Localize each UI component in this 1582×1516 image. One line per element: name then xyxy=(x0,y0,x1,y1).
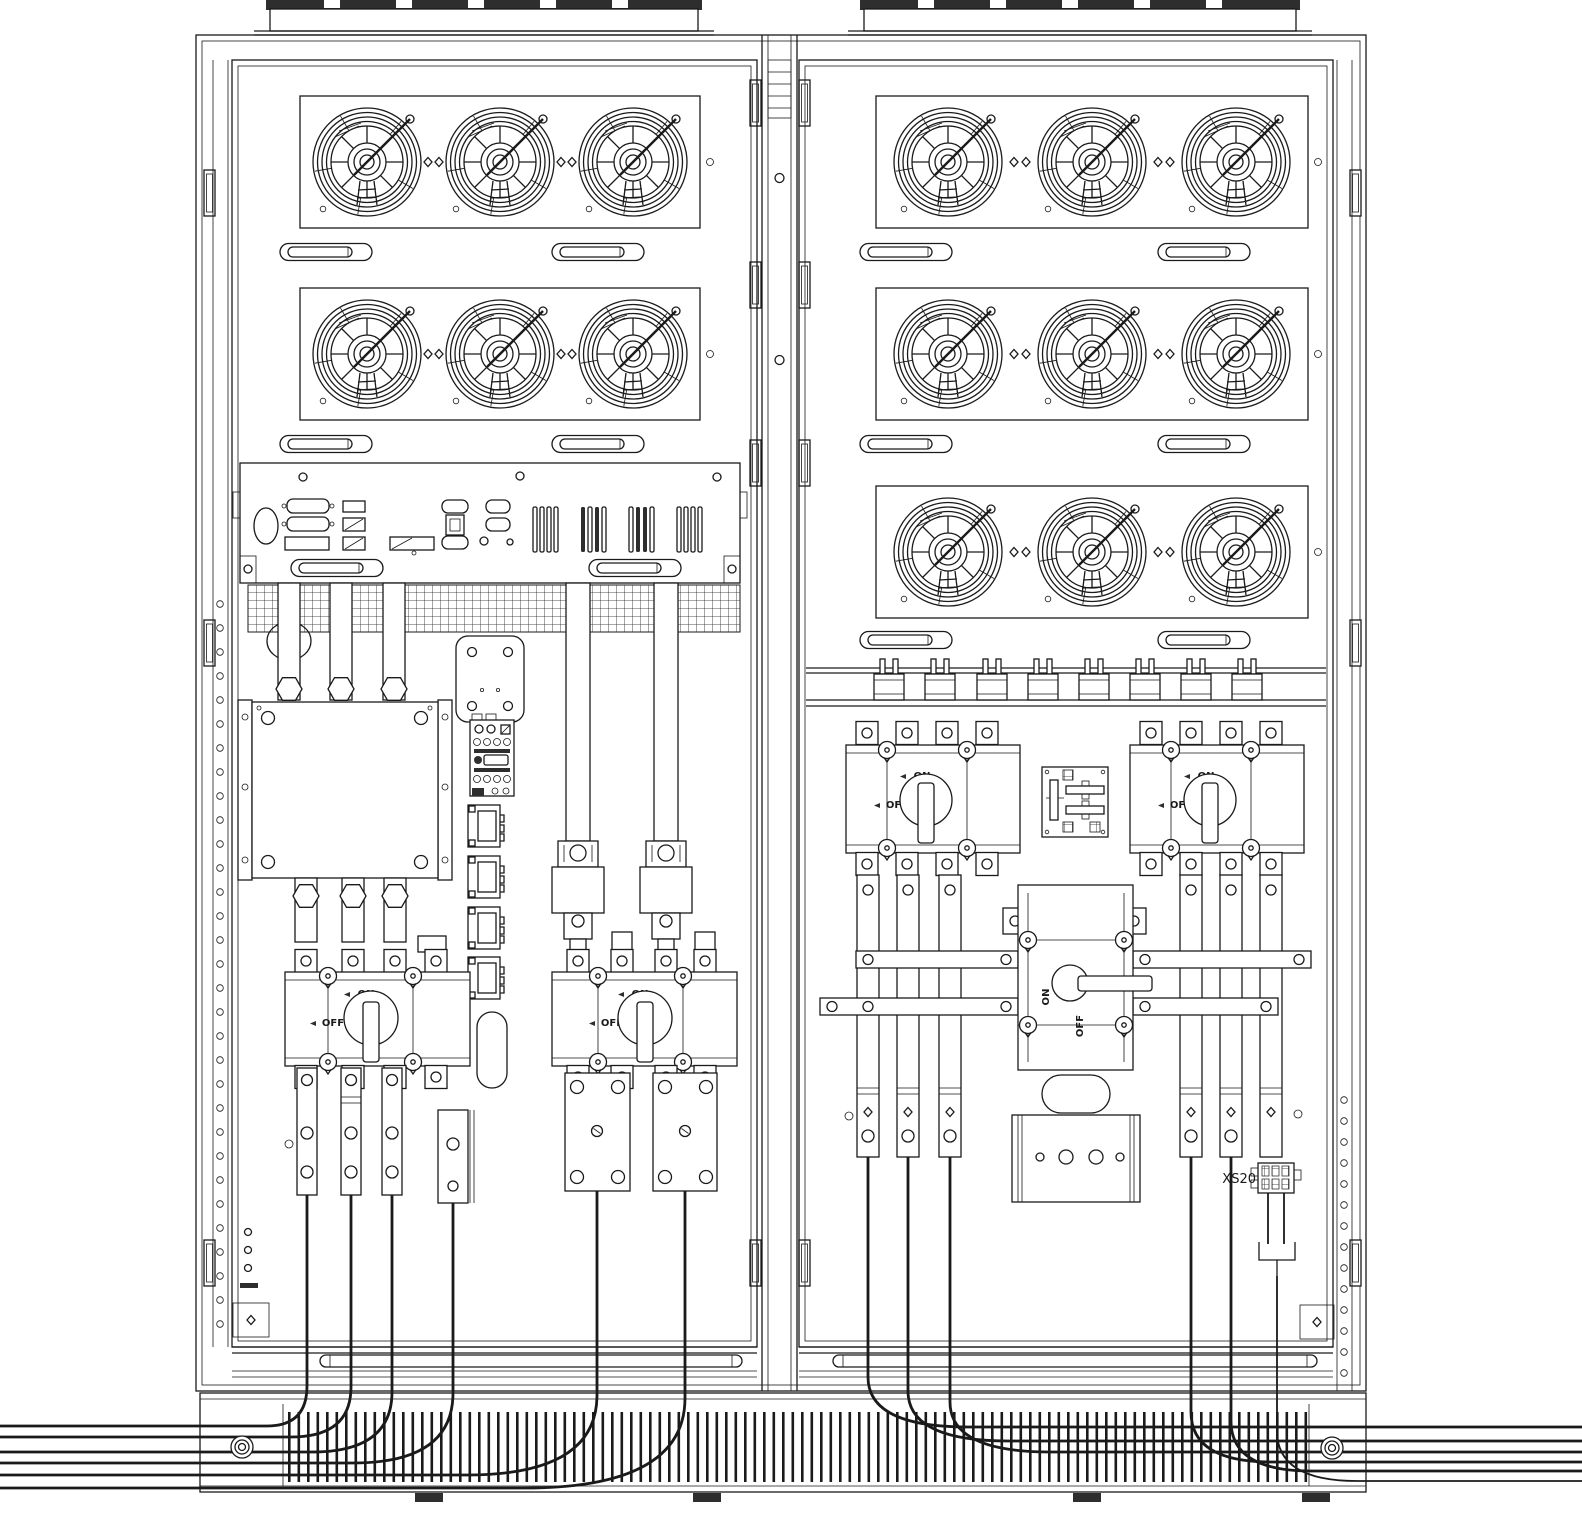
fan-icon xyxy=(894,498,1002,606)
right-bay-corner-bracket xyxy=(1300,1305,1334,1339)
left-fan-row-1 xyxy=(300,96,714,228)
panel-handle-slot xyxy=(1158,436,1250,453)
switch2-handle xyxy=(637,1002,653,1062)
plinth-bolt-right xyxy=(1321,1437,1343,1459)
fan-icon xyxy=(1038,108,1146,216)
fan-icon xyxy=(1038,498,1146,606)
fan-icon xyxy=(313,108,421,216)
fan-icon xyxy=(579,300,687,408)
fan-icon xyxy=(1038,300,1146,408)
plate-lower-busbars xyxy=(293,878,446,952)
fuse-busbar-a xyxy=(552,583,604,951)
panel-handle-slot xyxy=(280,436,372,453)
fan-icon xyxy=(1182,498,1290,606)
input-busbars xyxy=(276,583,407,700)
panel-handle-slot xyxy=(1158,632,1250,649)
roof-tray-left xyxy=(254,0,714,35)
bottom-cover-plate xyxy=(1012,1115,1140,1202)
vent-grille xyxy=(284,1412,1308,1482)
panel-handle-slot xyxy=(552,436,644,453)
plinth-bolt-left xyxy=(231,1436,253,1458)
xs20-connector: XS20 xyxy=(1222,1163,1301,1276)
fan-icon xyxy=(446,108,554,216)
panel-handle-slot xyxy=(1158,244,1250,261)
roof-tray-right xyxy=(848,0,1312,35)
fan-icon xyxy=(446,300,554,408)
panel-handle-slot xyxy=(860,436,952,453)
fuse-busbar-b xyxy=(640,583,692,951)
fan-icon xyxy=(894,108,1002,216)
contactor xyxy=(470,714,514,796)
terminal-blocks xyxy=(468,805,504,999)
bypass-switch: ON OFF xyxy=(1003,885,1152,1070)
left-fan-row-2 xyxy=(300,288,714,420)
rounded-cover-plate xyxy=(456,636,524,722)
control-pcb xyxy=(1042,767,1108,837)
drawing-canvas: ON OFF ON OFF ON OFF xyxy=(0,0,1582,1516)
panel-handle-slot xyxy=(280,244,372,261)
left-bay-indicator-dots xyxy=(240,1229,258,1289)
cable-oval-cutout xyxy=(1042,1075,1110,1113)
right-fan-row-2 xyxy=(876,288,1322,420)
bay-bottom-bands xyxy=(232,1347,1333,1377)
switch1-off-label: OFF xyxy=(322,1018,344,1029)
dc-terminal-rail xyxy=(806,659,1326,706)
cable-oval-cutout xyxy=(477,1012,507,1088)
switch-a-handle xyxy=(918,783,934,843)
panel-handle-slot xyxy=(860,632,952,649)
bypass-on-label: ON xyxy=(1041,989,1052,1006)
right-fan-row-1 xyxy=(876,96,1322,228)
left-mounting-rail xyxy=(213,60,228,1347)
center-post xyxy=(762,35,797,1391)
cabinet-feet xyxy=(415,1493,1330,1502)
right-fan-row-3 xyxy=(876,486,1322,618)
switch-a-busbars xyxy=(845,875,961,1157)
mounting-plate xyxy=(238,700,452,880)
fan-icon xyxy=(579,108,687,216)
right-mounting-rail xyxy=(1337,60,1352,1391)
fan-icon xyxy=(313,300,421,408)
disconnect-switch-a: ON OFF xyxy=(846,722,1020,876)
fan-icon xyxy=(1182,108,1290,216)
bypass-handle xyxy=(1078,976,1152,991)
switch-b-busbars xyxy=(1180,875,1302,1157)
fan-icon xyxy=(894,300,1002,408)
disconnect-switch-b: ON OFF xyxy=(1130,722,1304,876)
cabinet-drawing: ON OFF ON OFF ON OFF xyxy=(0,0,1582,1516)
switch1-handle xyxy=(363,1002,379,1062)
disconnect-switch-2: ON OFF xyxy=(552,932,737,1089)
panel-handle-slot xyxy=(552,244,644,261)
switch2-output-plates xyxy=(565,1073,717,1191)
bypass-off-label: OFF xyxy=(1075,1015,1086,1037)
panel-handle-slot xyxy=(860,244,952,261)
interface-panel xyxy=(233,463,747,583)
switch-b-handle xyxy=(1202,783,1218,843)
fan-icon xyxy=(1182,300,1290,408)
